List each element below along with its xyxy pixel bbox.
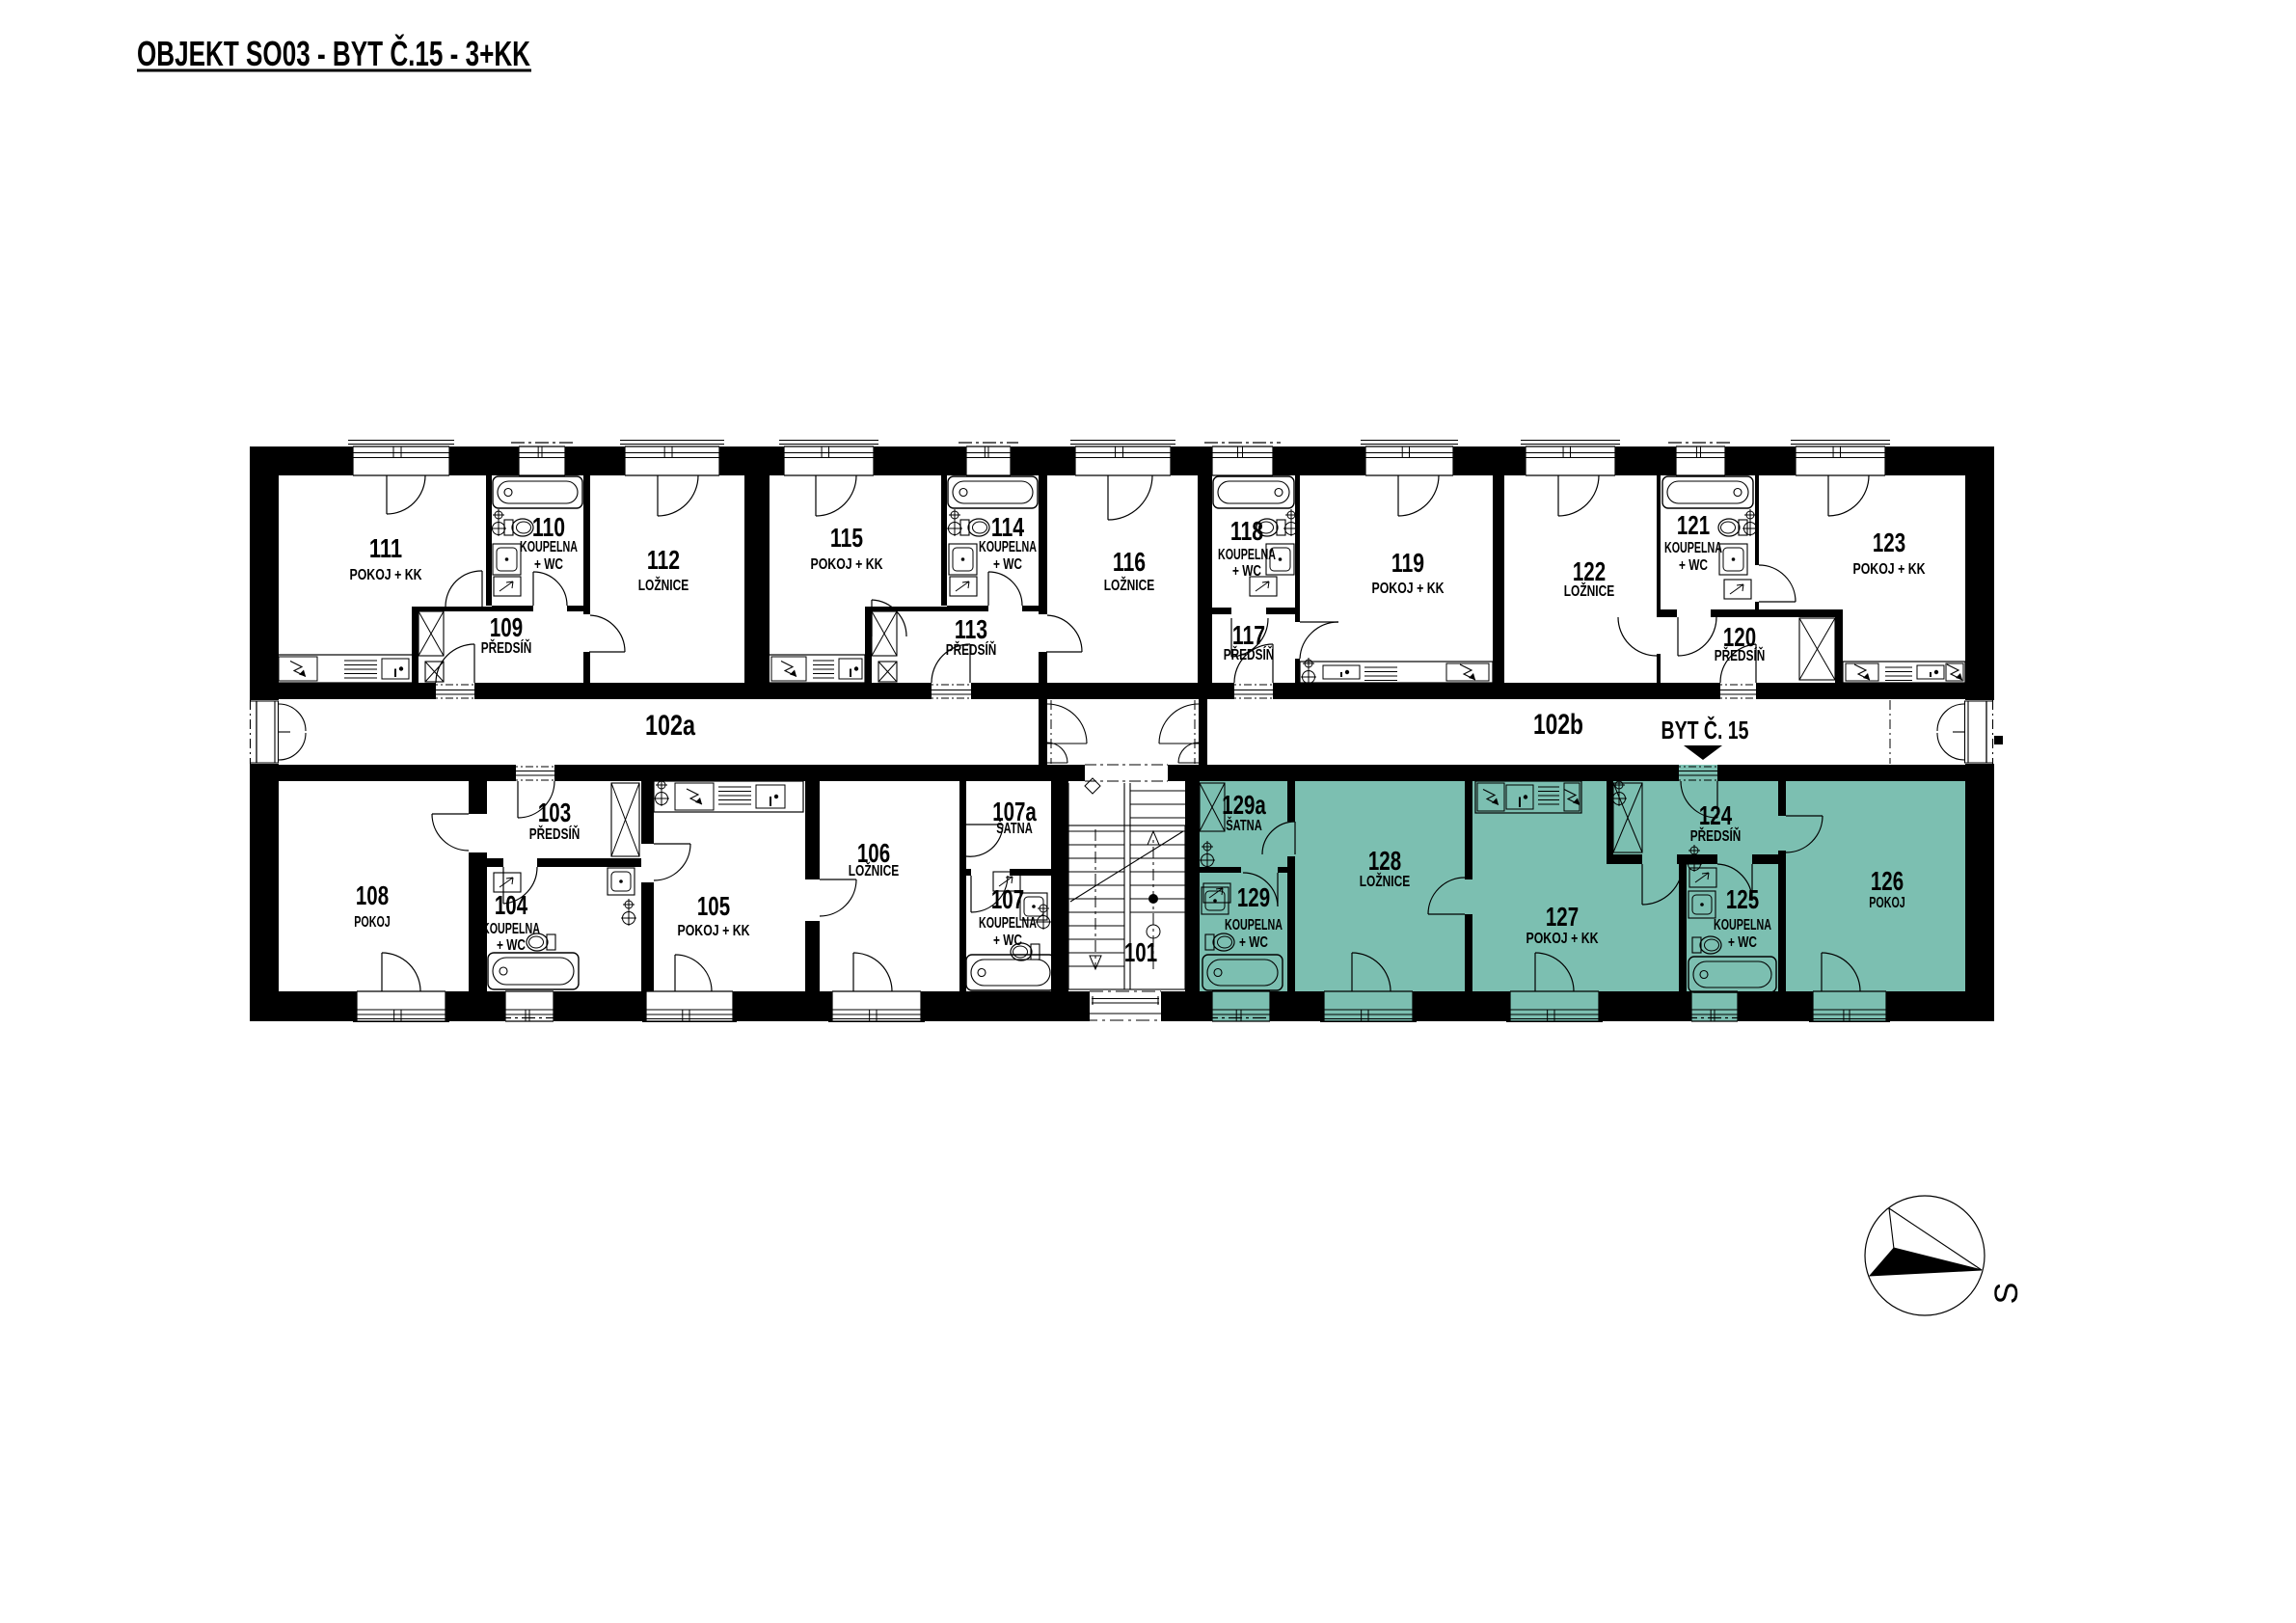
svg-text:125: 125: [1726, 884, 1759, 914]
svg-text:LOŽNICE: LOŽNICE: [1564, 582, 1615, 600]
svg-text:124: 124: [1699, 800, 1733, 830]
svg-text:113: 113: [955, 614, 987, 644]
svg-text:KOUPELNA: KOUPELNA: [979, 539, 1037, 555]
svg-text:121: 121: [1677, 510, 1710, 540]
svg-text:118: 118: [1230, 516, 1263, 546]
svg-text:+ WC: + WC: [1239, 934, 1268, 951]
svg-text:+ WC: + WC: [993, 933, 1022, 949]
svg-text:114: 114: [991, 512, 1025, 542]
svg-text:+ WC: + WC: [1232, 563, 1261, 580]
svg-text:POKOJ + KK: POKOJ + KK: [1372, 581, 1445, 597]
svg-text:110: 110: [532, 512, 565, 542]
svg-text:102a: 102a: [645, 710, 695, 742]
svg-text:105: 105: [697, 891, 730, 921]
svg-text:104: 104: [495, 890, 528, 920]
svg-text:POKOJ: POKOJ: [354, 914, 391, 931]
svg-text:PŘEDSÍŇ: PŘEDSÍŇ: [1690, 826, 1742, 845]
svg-text:POKOJ + KK: POKOJ + KK: [1853, 561, 1926, 578]
svg-text:117: 117: [1232, 620, 1265, 650]
svg-text:KOUPELNA: KOUPELNA: [1218, 547, 1276, 563]
svg-text:112: 112: [647, 545, 680, 575]
svg-text:KOUPELNA: KOUPELNA: [1664, 540, 1722, 556]
svg-text:PŘEDSÍŇ: PŘEDSÍŇ: [1715, 646, 1766, 664]
svg-text:PŘEDSÍŇ: PŘEDSÍŇ: [946, 640, 997, 659]
svg-text:S: S: [1988, 1283, 2025, 1305]
svg-text:109: 109: [490, 612, 523, 642]
svg-text:ŠATNA: ŠATNA: [1226, 816, 1262, 834]
svg-text:POKOJ + KK: POKOJ + KK: [811, 556, 883, 573]
svg-text:129: 129: [1237, 882, 1270, 912]
svg-text:POKOJ + KK: POKOJ + KK: [1526, 931, 1599, 947]
svg-text:+ WC: + WC: [1728, 934, 1757, 951]
svg-text:LOŽNICE: LOŽNICE: [638, 576, 689, 594]
svg-text:BYT Č. 15: BYT Č. 15: [1661, 716, 1749, 744]
svg-text:+ WC: + WC: [993, 556, 1022, 573]
svg-text:POKOJ + KK: POKOJ + KK: [678, 923, 750, 939]
svg-text:PŘEDSÍŇ: PŘEDSÍŇ: [1224, 645, 1275, 663]
svg-text:101: 101: [1124, 937, 1157, 967]
svg-text:103: 103: [538, 798, 571, 827]
svg-text:+ WC: + WC: [534, 556, 563, 573]
svg-text:127: 127: [1546, 902, 1579, 932]
svg-text:ŠATNA: ŠATNA: [996, 819, 1033, 837]
svg-text:+ WC: + WC: [1679, 557, 1708, 574]
svg-text:108: 108: [356, 880, 389, 910]
svg-text:102b: 102b: [1533, 709, 1583, 741]
svg-text:+ WC: + WC: [497, 937, 526, 954]
svg-text:LOŽNICE: LOŽNICE: [1104, 576, 1155, 594]
svg-text:107: 107: [991, 884, 1024, 914]
svg-text:OBJEKT SO03 - BYT Č.15 - 3+KK: OBJEKT SO03 - BYT Č.15 - 3+KK: [137, 33, 530, 73]
svg-text:KOUPELNA: KOUPELNA: [1225, 917, 1283, 933]
svg-text:KOUPELNA: KOUPELNA: [1714, 917, 1771, 933]
svg-text:126: 126: [1871, 866, 1904, 896]
svg-text:KOUPELNA: KOUPELNA: [979, 915, 1037, 932]
svg-text:KOUPELNA: KOUPELNA: [520, 539, 578, 555]
svg-text:KOUPELNA: KOUPELNA: [482, 921, 540, 937]
svg-text:LOŽNICE: LOŽNICE: [849, 861, 900, 879]
svg-text:PŘEDSÍŇ: PŘEDSÍŇ: [481, 638, 532, 657]
svg-text:111: 111: [369, 533, 402, 563]
svg-text:PŘEDSÍŇ: PŘEDSÍŇ: [529, 825, 581, 843]
svg-text:122: 122: [1573, 556, 1606, 586]
svg-text:POKOJ + KK: POKOJ + KK: [350, 567, 422, 583]
svg-text:115: 115: [830, 523, 863, 553]
svg-text:POKOJ: POKOJ: [1869, 895, 1905, 911]
svg-text:LOŽNICE: LOŽNICE: [1360, 872, 1411, 890]
svg-text:116: 116: [1113, 547, 1146, 577]
svg-text:123: 123: [1873, 527, 1905, 557]
svg-text:128: 128: [1368, 846, 1401, 876]
svg-text:129a: 129a: [1222, 790, 1266, 820]
svg-text:119: 119: [1391, 548, 1424, 578]
